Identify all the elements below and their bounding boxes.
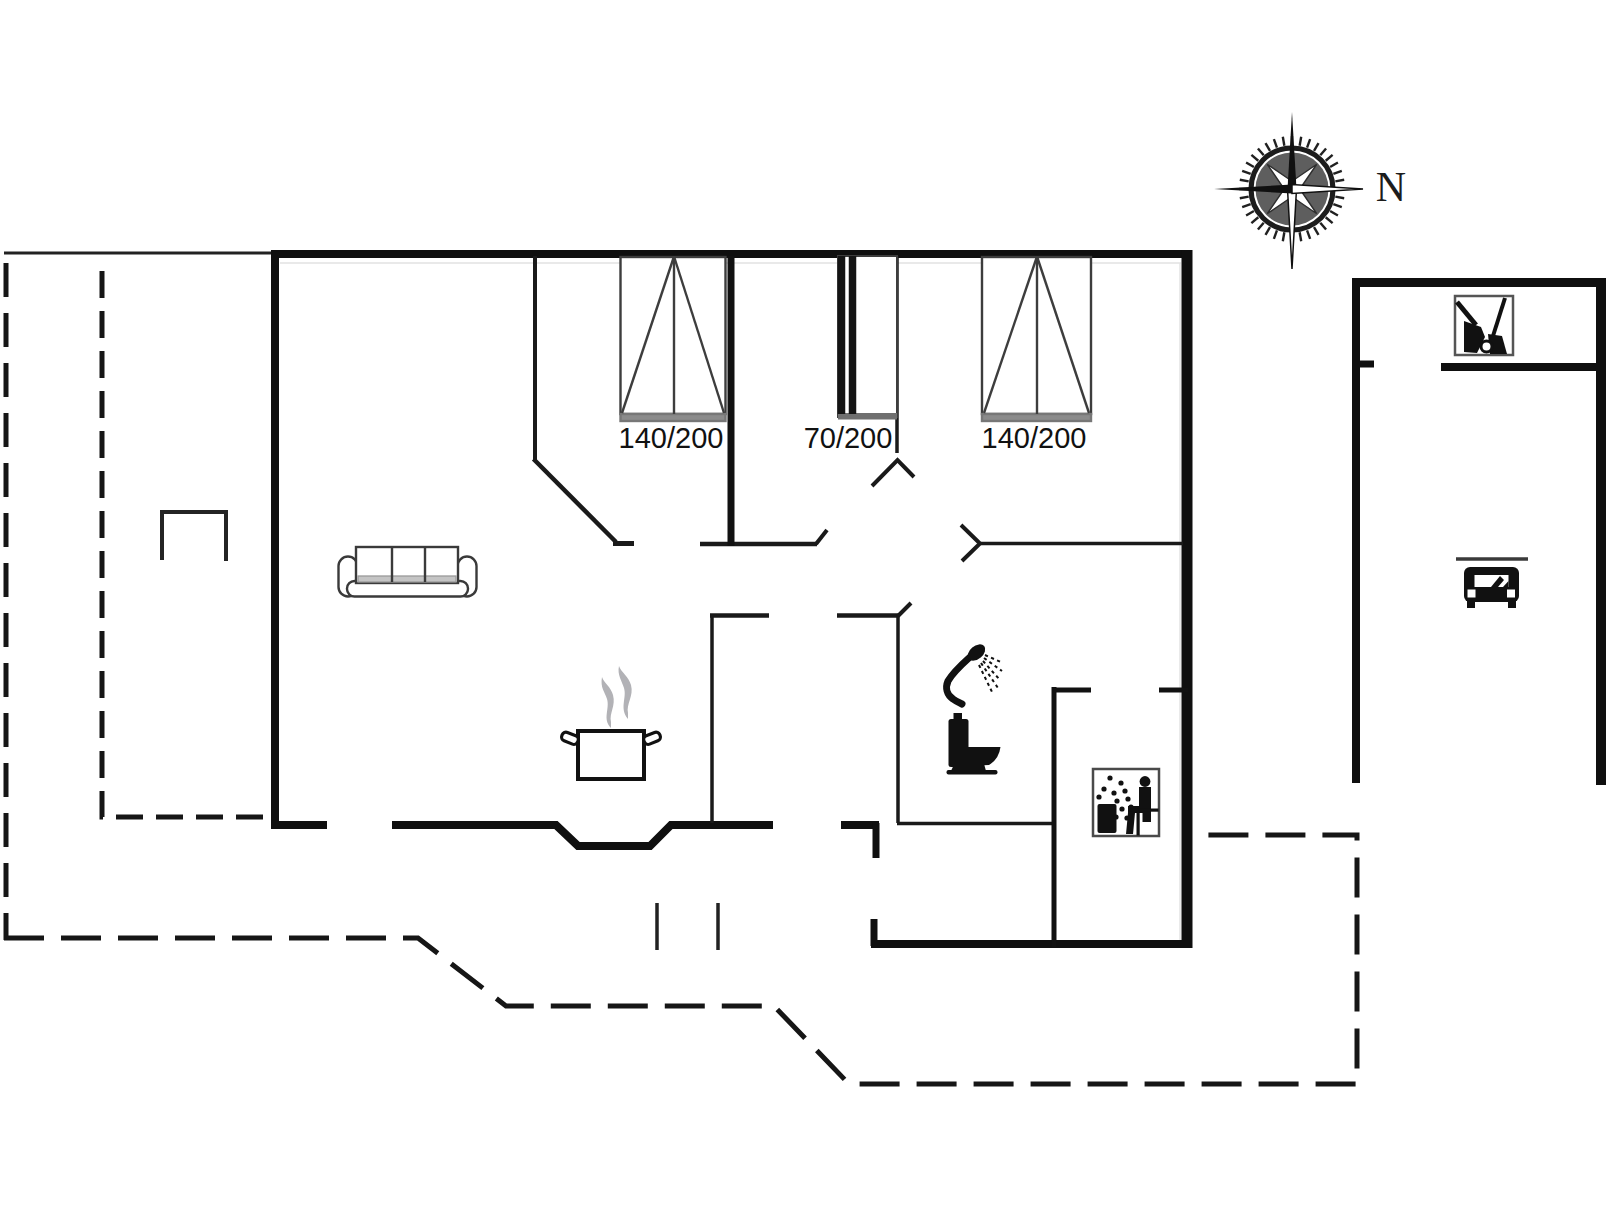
svg-text:N: N [1376, 164, 1406, 210]
svg-text:70/200: 70/200 [804, 422, 893, 454]
svg-text:140/200: 140/200 [619, 422, 724, 454]
svg-text:140/200: 140/200 [982, 422, 1087, 454]
